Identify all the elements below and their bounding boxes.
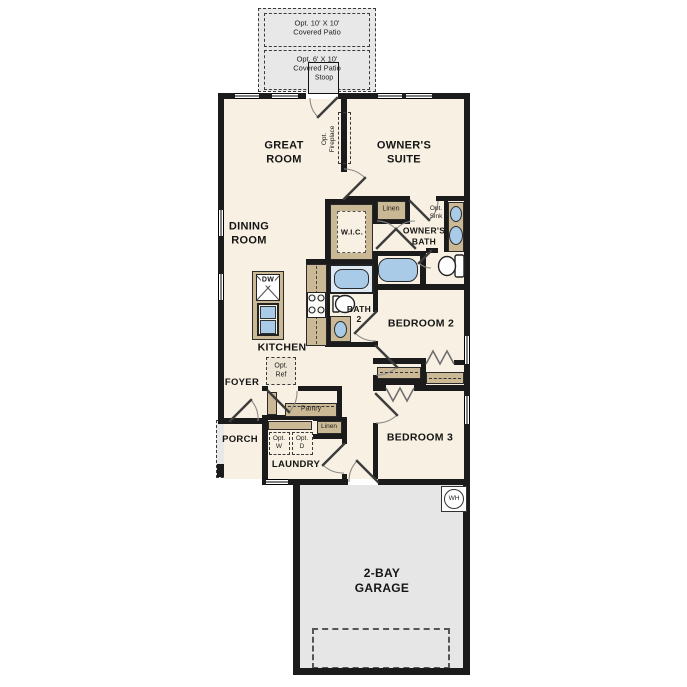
label-line: Opt. (321, 126, 329, 153)
label-line: Covered Patio (293, 64, 341, 73)
window (378, 93, 402, 99)
laundry-counter (268, 421, 312, 430)
porch-label: PORCH (222, 434, 258, 446)
label-line: DINING (229, 220, 269, 234)
wall-segment (218, 418, 268, 424)
wall-segment (414, 385, 470, 391)
wall-segment (454, 360, 464, 365)
window (272, 93, 298, 99)
label-line: SUITE (377, 153, 431, 167)
linen-hall-label: Linen (321, 423, 337, 431)
window (464, 396, 470, 424)
foyer-label: FOYER (225, 377, 259, 389)
wall-segment (338, 93, 470, 99)
wall-segment (342, 474, 347, 485)
wall-segment (373, 251, 420, 256)
owners-sink-1 (450, 206, 462, 222)
wall-segment (298, 386, 342, 391)
label-line: ROOM (229, 234, 269, 248)
shelf-dashline (429, 378, 461, 379)
bath2-label: BATH 2 (347, 305, 371, 325)
label-line: Sink (430, 213, 443, 221)
range (307, 292, 326, 318)
label-line: ROOM (264, 153, 303, 167)
opt-dryer-label: Opt. D (296, 435, 308, 451)
opt-ref-label: Opt. Ref (274, 362, 287, 380)
dishwasher-label: DW (261, 277, 275, 286)
bedroom3-closet-shelf (377, 367, 421, 379)
opt-sink-label: Opt. Sink (430, 205, 443, 221)
label-line: Opt. (430, 205, 443, 213)
label-line: Opt. 10' X 10' (293, 19, 341, 28)
island-sink-basin1 (260, 306, 276, 319)
label-line: GARAGE (355, 581, 409, 596)
label-line: Opt. 6' X 10' (293, 55, 341, 64)
garage-door-outline (312, 628, 450, 669)
label-line: GREAT (264, 139, 303, 153)
label-line: Opt. (274, 362, 287, 371)
opt-fireplace-label: Opt. Fireplace (321, 126, 337, 153)
window (266, 479, 288, 485)
label-line: OWNER'S (377, 139, 431, 153)
bedroom3-label: BEDROOM 3 (387, 431, 453, 444)
label-line: Opt. (273, 435, 285, 443)
island-sink-basin2 (260, 320, 276, 334)
opt-fireplace-box (338, 112, 351, 164)
kitchen-label: KITCHEN (258, 341, 307, 354)
label-line: Ref (274, 371, 287, 380)
opt-washer-label: Opt. W (273, 435, 285, 451)
label-line: 2 (347, 315, 371, 325)
owners-bath-label: OWNER'S BATH (403, 225, 445, 246)
owners-shower (378, 258, 418, 282)
label-line: OWNER'S (403, 225, 445, 236)
label-line: W (273, 443, 285, 451)
wall-segment (345, 196, 373, 201)
window (218, 274, 224, 300)
linen-owners-label: Linen (382, 206, 399, 215)
patio-option1-label: Opt. 10' X 10' Covered Patio (293, 19, 341, 38)
wall-segment (373, 284, 470, 290)
great-room-label: GREAT ROOM (264, 139, 303, 167)
label-line: 2-BAY (355, 566, 409, 581)
bath2-tub-basin (334, 269, 369, 289)
wall-segment (426, 248, 438, 253)
wall-segment (325, 342, 378, 347)
window (218, 210, 224, 236)
wall-segment (436, 196, 464, 201)
owners-sink-2 (449, 226, 463, 245)
label-line: Covered Patio (293, 28, 341, 37)
wall-segment (373, 341, 378, 346)
water-heater-label: WH (449, 495, 460, 503)
floor-plan: Opt. 10' X 10' Covered Patio Opt. 6' X 1… (0, 0, 687, 687)
bath2-sink (334, 321, 347, 338)
laundry-label: LAUNDRY (272, 459, 320, 471)
garage-wall (293, 485, 300, 675)
dining-room-label: DINING ROOM (229, 220, 269, 248)
label-line: Fireplace (329, 126, 337, 153)
owners-suite-label: OWNER'S SUITE (377, 139, 431, 167)
foyer-cabinet (267, 392, 277, 415)
window (235, 93, 259, 99)
wall-segment (378, 479, 470, 485)
wall-segment (373, 358, 425, 364)
label-line: Opt. (296, 435, 308, 443)
pantry-label: Pantry (301, 406, 321, 415)
wall-segment (218, 93, 224, 424)
wall-segment (373, 220, 410, 224)
stoop-label: Stoop (315, 75, 333, 84)
window (464, 336, 470, 364)
label-line: BATH (403, 236, 445, 247)
label-line: D (296, 443, 308, 451)
garage-wall (293, 668, 470, 675)
garage-wall (463, 485, 470, 675)
window (406, 93, 432, 99)
patio-option2-label: Opt. 6' X 10' Covered Patio (293, 55, 341, 74)
wall-segment (342, 417, 347, 444)
wall-segment (313, 434, 342, 439)
wall-segment (262, 386, 268, 391)
wall-segment (373, 385, 386, 391)
wic-label: W.I.C. (341, 227, 363, 236)
bedroom2-label: BEDROOM 2 (388, 317, 454, 330)
shelf-dashline (380, 372, 418, 373)
wall-segment (373, 423, 378, 479)
garage-label: 2-BAY GARAGE (355, 566, 409, 596)
